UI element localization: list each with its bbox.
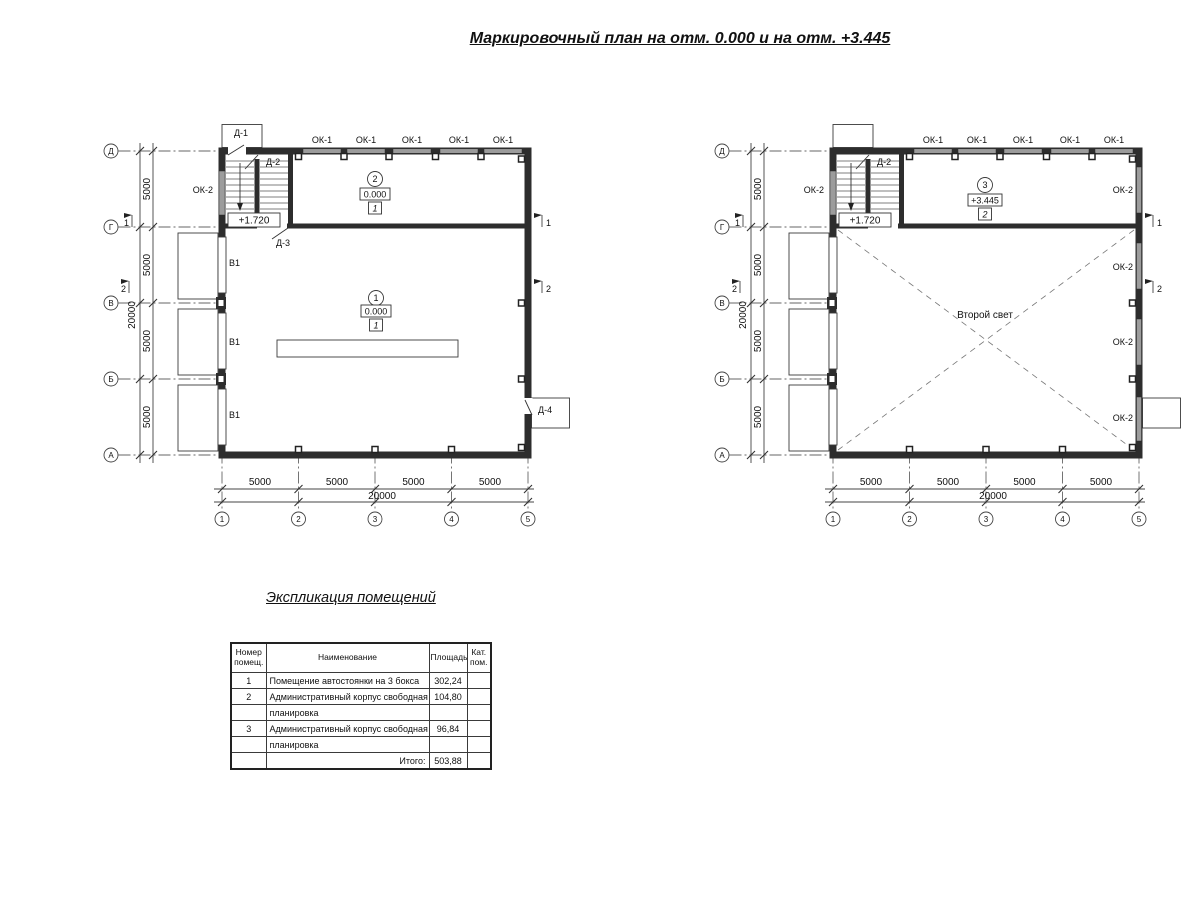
schedule-row: 1 Помещение автостоянки на 3 бокса 302,2… [231,673,491,689]
gate-opening [829,389,837,445]
door-label: Д-2 [266,157,280,167]
dim-label: 5000 [1090,477,1113,488]
col-axis-label: 4 [449,515,454,524]
room-category: 1 [373,321,378,331]
room-category-cell [467,705,491,721]
door-label: Д-1 [234,128,248,138]
room-schedule-table: Номер помещ. Наименование Площадь Кат. п… [230,642,492,770]
section-mark-label: 1 [124,218,129,228]
window-label: ОК-2 [1113,262,1133,272]
dim-label: 5000 [142,329,153,352]
dim-total-label: 20000 [368,491,396,502]
section-mark-label: 2 [1157,284,1162,294]
axis-grid: Д Г В Б А 1 2 3 4 5 5000 5000 5000 5000 … [104,143,535,526]
schedule-header-row: Номер помещ. Наименование Площадь Кат. п… [231,643,491,673]
room-number-cell: 3 [231,721,266,737]
window-label: ОК-1 [449,135,469,145]
row-axis-label: Д [719,147,725,156]
schedule-title: Экспликация помещений [266,590,436,606]
stair-divider [866,159,871,213]
schedule-row: планировка [231,705,491,721]
header-room-category: Кат. пом. [467,643,491,673]
row-axis-label: В [719,299,724,308]
window-label: ОК-1 [967,135,987,145]
stair-level-mark: +1.720 [850,216,881,227]
inspection-pit [277,340,458,357]
dim-label: 5000 [753,329,764,352]
room-category-cell [467,689,491,705]
stair-arrow [848,203,854,211]
section-mark-label: 2 [732,284,737,294]
room-level: +3.445 [971,196,999,206]
room-number: 1 [373,293,378,303]
schedule-row: 3 Административный корпус свободная 96,8… [231,721,491,737]
row-axis-label: Б [719,375,724,384]
dim-label: 5000 [1013,477,1036,488]
drawing-sheet: Маркировочный план на отм. 0.000 и на от… [0,0,1200,900]
header-room-area: Площадь [429,643,467,673]
plan-upper-floor: Д Г В Б А 1 2 3 4 5 5000 5000 5000 5000 … [713,115,1200,565]
door-opening-d1 [228,147,246,156]
window-label: ОК-1 [402,135,422,145]
stair-wall [899,155,904,229]
window-label: ОК-1 [1013,135,1033,145]
openings [829,223,898,446]
schedule-row: планировка [231,737,491,753]
schedule-total-row: Итого: 503,88 [231,753,491,770]
stair-divider [255,159,260,213]
room-area-cell: 104,80 [429,689,467,705]
second-light-cross [838,230,1134,450]
gate-label: В1 [229,258,240,268]
row-axis-label: Г [720,223,725,232]
gate-opening [218,389,226,445]
dim-label: 5000 [937,477,960,488]
row-axis-label: А [108,451,114,460]
header-room-number: Номер помещ. [231,643,266,673]
room-category-cell [467,673,491,689]
col-axis-label: 1 [831,515,836,524]
room-area-cell: 96,84 [429,721,467,737]
header-room-name: Наименование [266,643,429,673]
room-name-cell: планировка [266,705,429,721]
door-label: Д-2 [877,157,891,167]
section-mark-label: 1 [735,218,740,228]
plan-ground-floor: Д Г В Б А 1 2 3 4 5 5000 5000 5000 5000 … [102,115,592,565]
window-label: ОК-1 [312,135,332,145]
gate-opening [218,313,226,369]
room-name-cell: Административный корпус свободная [266,721,429,737]
room-area-cell [429,737,467,753]
section-mark-label: 1 [1157,218,1162,228]
labels: ОК-1 ОК-1 ОК-1 ОК-1 ОК-1 ОК-2 ОК-2 ОК-2 … [804,135,1133,423]
col-axis-label: 5 [526,515,531,524]
room-number-cell [231,737,266,753]
room-category: 1 [372,204,377,214]
room-level: 0.000 [365,307,388,317]
total-label-cell: Итого: [266,753,429,770]
room-area-cell [429,705,467,721]
col-axis-label: 5 [1137,515,1142,524]
section-mark-label: 1 [546,218,551,228]
window-label: ОК-1 [356,135,376,145]
room-name-cell: Административный корпус свободная [266,689,429,705]
room-name-cell: планировка [266,737,429,753]
stair-arrow [237,203,243,211]
window-label: ОК-2 [1113,413,1133,423]
room-marker-3: 3 +3.445 2 [968,178,1002,221]
dim-label: 5000 [479,477,502,488]
col-axis-label: 1 [220,515,225,524]
room-marker-2: 2 0.000 1 [360,172,390,215]
room-number-cell: 2 [231,689,266,705]
dim-total-label: 20000 [979,491,1007,502]
room-number: 3 [982,180,987,190]
room-level: 0.000 [364,190,387,200]
room-number-cell: 1 [231,673,266,689]
dim-label: 5000 [326,477,349,488]
row-axis-label: В [108,299,113,308]
entrance-vestibule [833,125,873,148]
col-axis-label: 2 [907,515,912,524]
dim-label: 5000 [753,405,764,428]
dim-label: 5000 [753,253,764,276]
room-category: 2 [981,210,987,220]
window-label: ОК-1 [1104,135,1124,145]
window-label: ОК-2 [1113,337,1133,347]
empty-cell [231,753,266,770]
window-label: ОК-1 [493,135,513,145]
dim-total-label: 20000 [738,301,749,329]
room-marker-1: 1 0.000 1 [361,291,391,332]
window-label: ОК-1 [923,135,943,145]
col-axis-label: 2 [296,515,301,524]
dim-label: 5000 [249,477,272,488]
dim-label: 5000 [142,405,153,428]
section-mark-label: 2 [121,284,126,294]
room-number: 2 [372,174,377,184]
row-axis-label: Б [108,375,113,384]
dim-label: 5000 [753,177,764,200]
room-name-cell: Помещение автостоянки на 3 бокса [266,673,429,689]
room-category-cell [467,737,491,753]
window-label: ОК-2 [804,185,824,195]
door-label: Д-4 [538,405,552,415]
second-light-label: Второй свет [957,310,1013,321]
schedule-row: 2 Административный корпус свободная 104,… [231,689,491,705]
room-category-cell [467,721,491,737]
door-leaves [228,145,532,415]
row-axis-label: Г [109,223,114,232]
col-axis-label: 4 [1060,515,1065,524]
window-label: ОК-2 [193,185,213,195]
stair-wall [288,155,293,229]
gate-opening [829,237,837,293]
side-vestibule [1143,398,1181,428]
dim-label: 5000 [142,177,153,200]
window-label: ОК-1 [1060,135,1080,145]
total-area-cell: 503,88 [429,753,467,770]
room-number-cell [231,705,266,721]
section-mark-label: 2 [546,284,551,294]
room-area-cell: 302,24 [429,673,467,689]
dim-label: 5000 [860,477,883,488]
door-label: Д-3 [276,238,290,248]
gate-opening [218,237,226,293]
col-axis-label: 3 [984,515,989,524]
stair-level-mark: +1.720 [239,216,270,227]
room-category-cell [467,753,491,770]
annexes [789,125,1181,452]
gate-label: В1 [229,337,240,347]
dim-label: 5000 [142,253,153,276]
row-axis-label: А [719,451,725,460]
drawing-title: Маркировочный план на отм. 0.000 и на от… [430,30,930,48]
col-axis-label: 3 [373,515,378,524]
dim-label: 5000 [402,477,425,488]
window-label: ОК-2 [1113,185,1133,195]
dim-total-label: 20000 [127,301,138,329]
row-axis-label: Д [108,147,114,156]
gate-label: В1 [229,410,240,420]
axis-grid: Д Г В Б А 1 2 3 4 5 5000 5000 5000 5000 … [715,143,1146,526]
gate-opening [829,313,837,369]
